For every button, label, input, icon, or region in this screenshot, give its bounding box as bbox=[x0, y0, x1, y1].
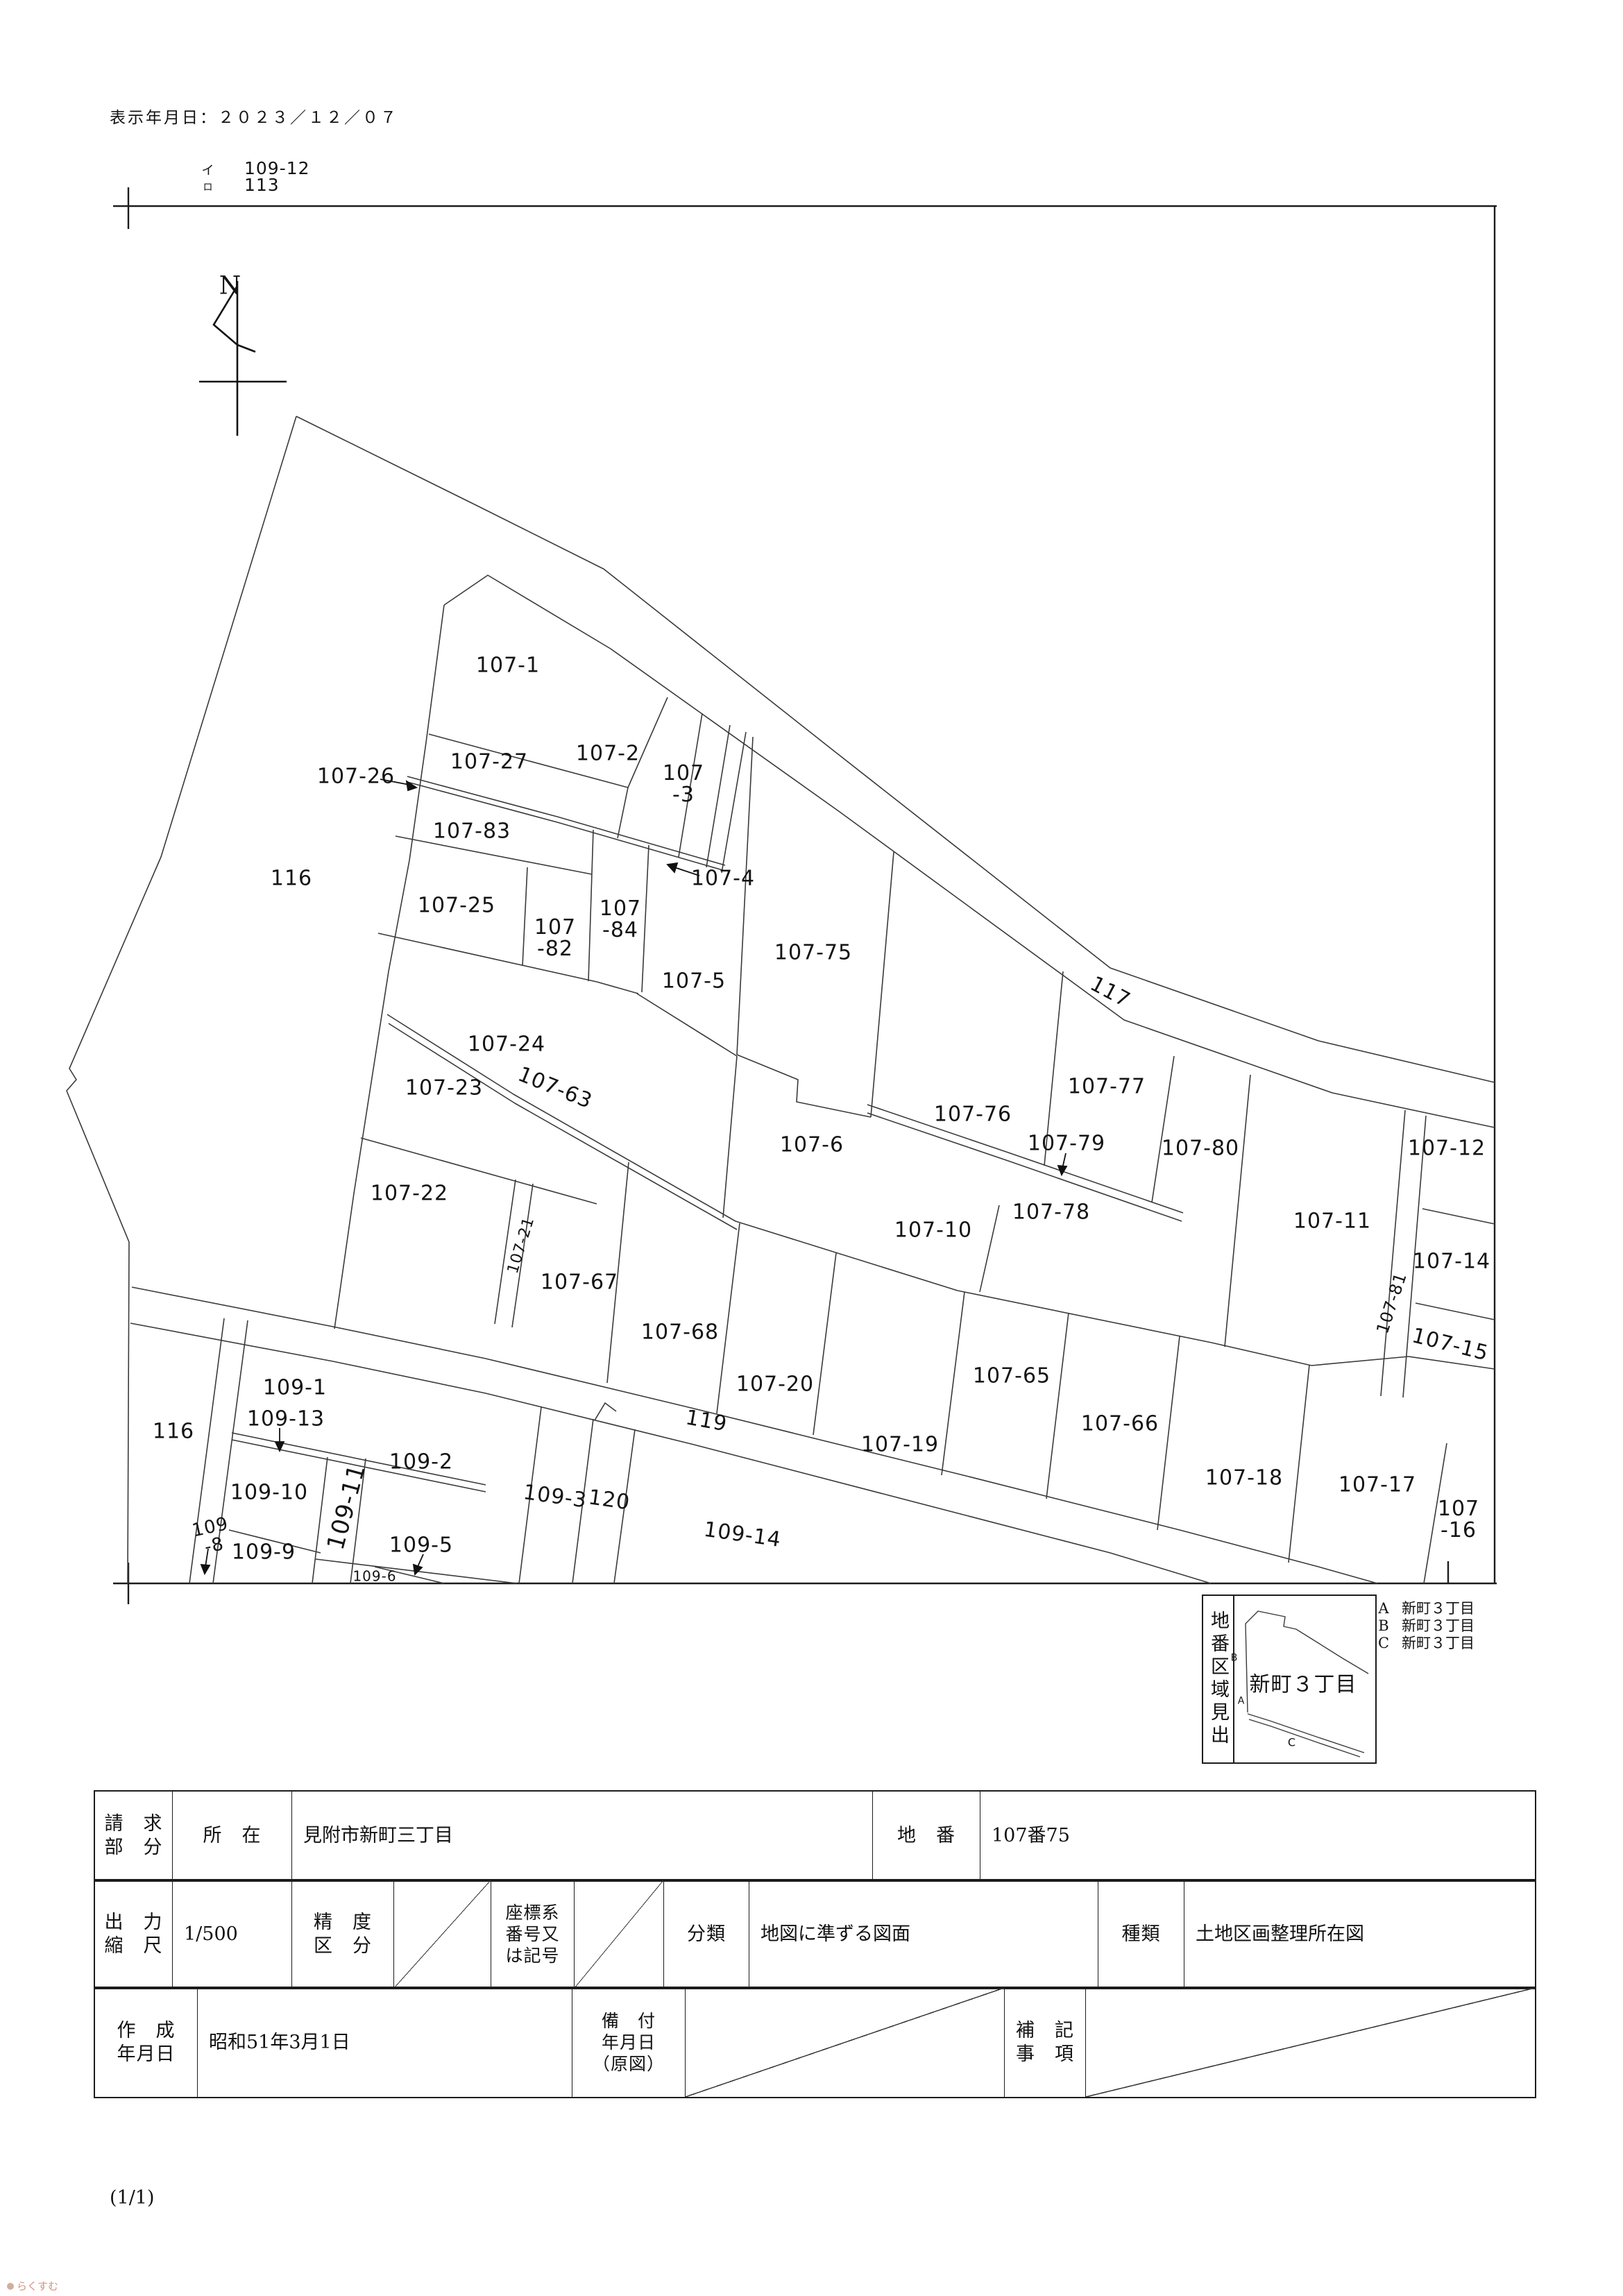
map-label-107-14: 107-14 bbox=[1413, 1250, 1490, 1272]
map-label-109-6: 109-6 bbox=[352, 1570, 396, 1584]
map-label-109-8: 109 -8 bbox=[191, 1515, 235, 1559]
map-label-107-26: 107-26 bbox=[317, 765, 395, 787]
cadastral-map-document: 表示年月日：２０２３／１２／０７ bbox=[0, 0, 1623, 2296]
map-label-107-76: 107-76 bbox=[934, 1103, 1012, 1125]
legend-key: B bbox=[1377, 1617, 1391, 1635]
map-label-ref-ro-sym: ロ bbox=[203, 183, 214, 194]
legend-key: C bbox=[1377, 1635, 1391, 1652]
map-label-107-82: 107 -82 bbox=[534, 917, 576, 960]
legend-value: 新町３丁目 bbox=[1402, 1600, 1475, 1617]
map-label-107-19: 107-19 bbox=[861, 1434, 939, 1455]
map-labels-layer: Nイ109-12ロ113107-1107-27107-26107-2107 -3… bbox=[0, 0, 1623, 2296]
map-label-107-16: 107 -16 bbox=[1438, 1498, 1479, 1541]
map-label-107-2: 107-2 bbox=[576, 742, 640, 764]
map-label-road-117: 117 bbox=[1087, 973, 1134, 1012]
map-label-107-22: 107-22 bbox=[371, 1182, 448, 1204]
map-label-107-6: 107-6 bbox=[780, 1134, 844, 1155]
legend-row: A 新町３丁目 bbox=[1377, 1600, 1475, 1617]
district-index-title: 地番区域見出 bbox=[1203, 1596, 1234, 1762]
map-label-107-68: 107-68 bbox=[641, 1321, 719, 1343]
map-label-107-66: 107-66 bbox=[1081, 1413, 1159, 1434]
map-label-107-5: 107-5 bbox=[662, 970, 726, 992]
map-label-107-79: 107-79 bbox=[1028, 1132, 1105, 1154]
map-label-116-lower: 116 bbox=[153, 1420, 194, 1442]
map-label-109-2: 109-2 bbox=[389, 1451, 453, 1472]
map-label-107-78: 107-78 bbox=[1012, 1201, 1090, 1223]
map-label-107-23: 107-23 bbox=[405, 1077, 483, 1098]
map-label-109-3: 109-3 bbox=[522, 1481, 588, 1512]
map-label-120: 120 bbox=[587, 1486, 631, 1513]
map-label-107-1: 107-1 bbox=[476, 654, 540, 676]
map-label-109-11: 109-11 bbox=[324, 1461, 371, 1552]
legend-key: A bbox=[1377, 1600, 1391, 1617]
map-label-107-4: 107-4 bbox=[691, 867, 755, 889]
map-label-road-119: 119 bbox=[684, 1406, 729, 1435]
map-label-107-65: 107-65 bbox=[973, 1365, 1051, 1386]
district-legend: A 新町３丁目 B 新町３丁目 C 新町３丁目 bbox=[1377, 1600, 1475, 1651]
map-label-107-18: 107-18 bbox=[1205, 1467, 1283, 1488]
map-label-107-11: 107-11 bbox=[1293, 1210, 1371, 1232]
legend-value: 新町３丁目 bbox=[1402, 1635, 1475, 1652]
map-label-107-15: 107-15 bbox=[1410, 1325, 1490, 1364]
map-label-ref-i-sym: イ bbox=[202, 165, 215, 178]
map-label-109-10: 109-10 bbox=[230, 1481, 308, 1503]
map-label-107-67: 107-67 bbox=[541, 1271, 618, 1293]
map-label-107-25: 107-25 bbox=[418, 894, 495, 916]
map-label-107-83: 107-83 bbox=[433, 820, 511, 842]
watermark: らくすむ bbox=[7, 2279, 58, 2293]
district-index-box: 地番区域見出 bbox=[1202, 1595, 1377, 1764]
map-label-107-84: 107 -84 bbox=[600, 898, 641, 941]
legend-row: C 新町３丁目 bbox=[1377, 1635, 1475, 1652]
map-label-107-17: 107-17 bbox=[1339, 1474, 1416, 1495]
map-label-109-1: 109-1 bbox=[263, 1377, 327, 1398]
map-label-107-77: 107-77 bbox=[1068, 1075, 1146, 1097]
map-label-107-24: 107-24 bbox=[468, 1033, 545, 1055]
map-label-107-10: 107-10 bbox=[894, 1219, 972, 1241]
watermark-text: らくすむ bbox=[17, 2279, 58, 2293]
legend-row: B 新町３丁目 bbox=[1377, 1617, 1475, 1635]
legend-value: 新町３丁目 bbox=[1402, 1617, 1475, 1635]
map-label-107-75: 107-75 bbox=[774, 942, 852, 963]
map-label-107-12: 107-12 bbox=[1408, 1137, 1486, 1159]
map-label-107-63: 107-63 bbox=[515, 1064, 595, 1113]
map-label-116-upper: 116 bbox=[271, 867, 312, 889]
map-label-107-3: 107 -3 bbox=[663, 763, 704, 806]
map-label-109-14: 109-14 bbox=[702, 1519, 783, 1551]
map-label-107-20: 107-20 bbox=[736, 1373, 814, 1395]
map-label-109-5: 109-5 bbox=[389, 1534, 453, 1556]
map-label-107-21: 107-21 bbox=[506, 1216, 538, 1276]
map-label-107-80: 107-80 bbox=[1162, 1137, 1239, 1159]
page-indicator: (1/1) bbox=[110, 2187, 155, 2209]
map-label-ref-ro-val: 113 bbox=[244, 176, 280, 194]
map-label-109-13: 109-13 bbox=[247, 1408, 325, 1429]
map-label-107-81: 107-81 bbox=[1374, 1270, 1410, 1336]
map-label-north: N bbox=[219, 273, 242, 298]
watermark-logo-icon bbox=[7, 2283, 14, 2290]
map-label-107-27: 107-27 bbox=[450, 751, 528, 772]
map-label-109-9: 109-9 bbox=[232, 1541, 296, 1563]
